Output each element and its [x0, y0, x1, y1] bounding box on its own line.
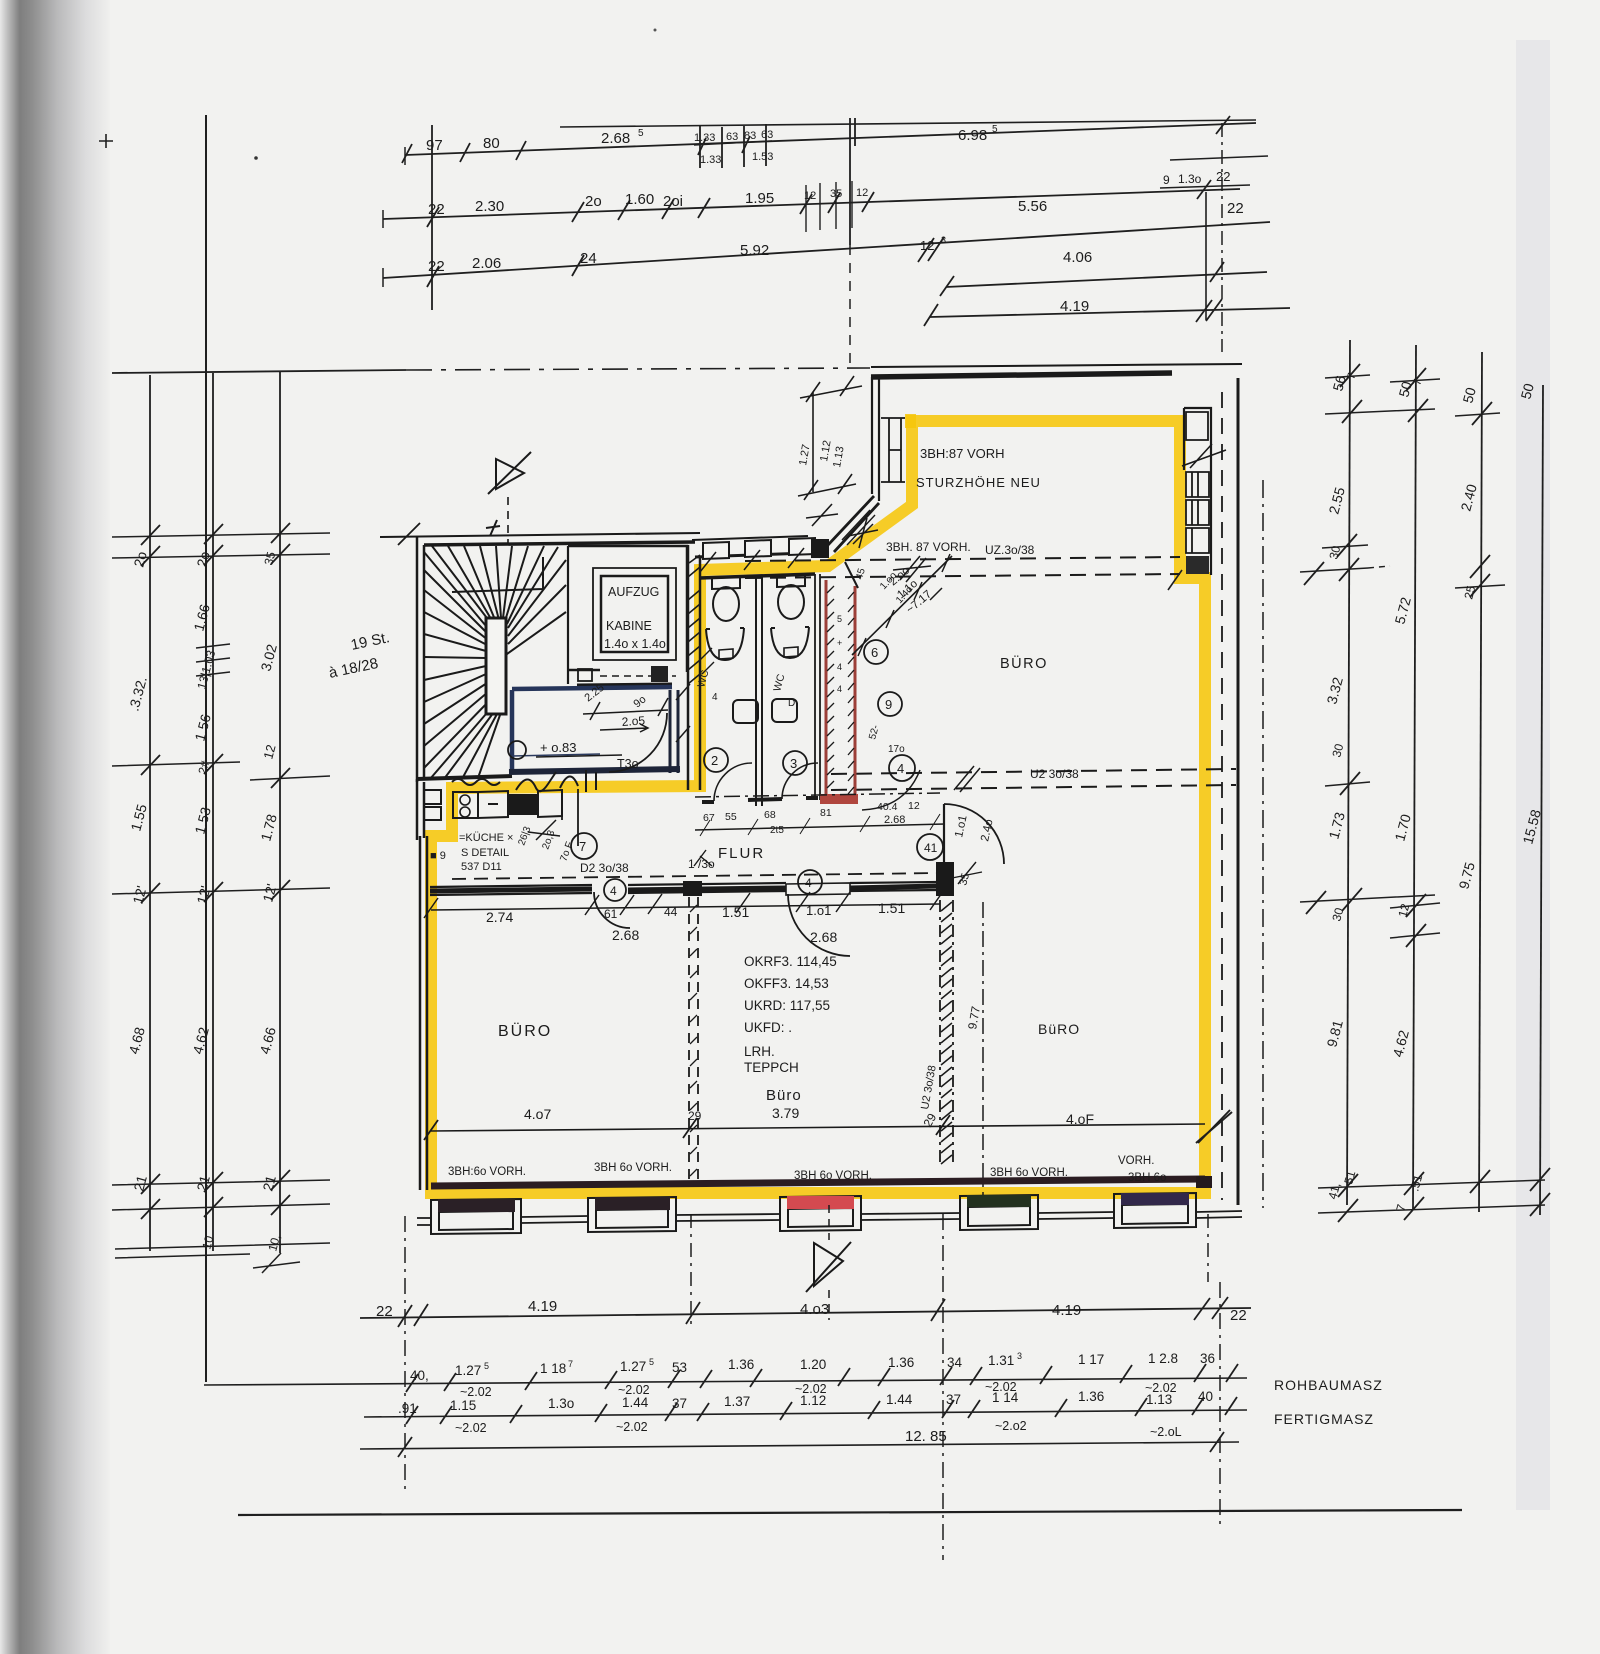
svg-text:~2.02: ~2.02: [616, 1420, 648, 1434]
svg-text:1 /3o: 1 /3o: [688, 857, 715, 871]
svg-text:17o: 17o: [888, 744, 905, 755]
svg-text:2oi: 2oi: [663, 193, 683, 210]
svg-text:2.68: 2.68: [601, 130, 630, 147]
svg-text:5: 5: [638, 128, 644, 139]
svg-text:12: 12: [908, 800, 920, 812]
svg-text:55: 55: [725, 811, 737, 823]
svg-text:4.19: 4.19: [1060, 298, 1089, 315]
svg-text:22: 22: [1227, 200, 1244, 217]
svg-text:12. 85: 12. 85: [905, 1428, 947, 1445]
svg-text:1.20: 1.20: [800, 1357, 826, 1372]
svg-text:24: 24: [580, 250, 597, 267]
svg-text:1.3o: 1.3o: [548, 1396, 574, 1411]
svg-text:61: 61: [604, 907, 618, 921]
svg-text:2.06: 2.06: [472, 255, 501, 272]
svg-text:22: 22: [1216, 169, 1230, 184]
svg-text:■ 9: ■ 9: [430, 850, 446, 862]
svg-text:LRH.: LRH.: [744, 1044, 775, 1059]
svg-text:2o: 2o: [585, 193, 602, 210]
svg-text:1.60: 1.60: [625, 191, 654, 208]
svg-text:~2.02: ~2.02: [455, 1421, 487, 1435]
svg-text:22: 22: [376, 1303, 393, 1320]
svg-text:UZ.3o/38: UZ.3o/38: [985, 543, 1035, 557]
svg-text:63: 63: [761, 129, 773, 141]
svg-text:FLUR: FLUR: [718, 845, 765, 862]
svg-text:TEPPCH: TEPPCH: [744, 1060, 799, 1075]
svg-text:1.37: 1.37: [724, 1394, 750, 1409]
svg-text:ROHBAUMASZ: ROHBAUMASZ: [1274, 1377, 1383, 1393]
svg-text:5: 5: [484, 1361, 489, 1371]
svg-text:6.98: 6.98: [958, 127, 987, 144]
svg-text:Büro: Büro: [766, 1087, 802, 1104]
svg-text:U2 3o/38: U2 3o/38: [1030, 767, 1079, 781]
svg-text:2.30: 2.30: [475, 198, 504, 215]
svg-text:2.o5: 2.o5: [621, 713, 646, 729]
svg-text:1.36: 1.36: [888, 1355, 914, 1370]
svg-text:D: D: [788, 698, 795, 709]
svg-text:9: 9: [885, 697, 892, 712]
svg-text:BÜRO: BÜRO: [1000, 654, 1048, 672]
svg-text:3: 3: [1017, 1351, 1022, 1361]
svg-text:D2 3o/38: D2 3o/38: [580, 861, 629, 875]
svg-text:81: 81: [820, 807, 832, 819]
svg-text:4: 4: [805, 876, 812, 890]
svg-text:4.19: 4.19: [528, 1298, 557, 1315]
svg-text:1 14: 1 14: [992, 1390, 1019, 1405]
svg-text:1.15: 1.15: [450, 1398, 476, 1413]
svg-text:3BH 6o VORH.: 3BH 6o VORH.: [794, 1170, 872, 1182]
svg-text:1 17: 1 17: [1078, 1352, 1104, 1367]
svg-text:1 2.8: 1 2.8: [1148, 1351, 1178, 1366]
svg-text:1.36: 1.36: [728, 1357, 754, 1372]
svg-text:1.44: 1.44: [886, 1392, 913, 1407]
svg-text:AUFZUG: AUFZUG: [608, 585, 659, 599]
svg-text:1.27: 1.27: [620, 1359, 646, 1374]
svg-text:4.06: 4.06: [1063, 249, 1092, 266]
svg-text:2.68: 2.68: [612, 927, 639, 943]
svg-text:+: +: [837, 638, 842, 648]
svg-text:BÜRO: BÜRO: [498, 1022, 552, 1040]
svg-text:FERTIGMASZ: FERTIGMASZ: [1274, 1411, 1374, 1427]
svg-text:2.68: 2.68: [810, 929, 837, 945]
svg-text:40,: 40,: [410, 1368, 429, 1383]
svg-text:S DETAIL: S DETAIL: [461, 847, 509, 859]
svg-text:4: 4: [712, 692, 718, 703]
svg-text:1.4o x 1.4o: 1.4o x 1.4o: [604, 637, 666, 651]
svg-text:2.68: 2.68: [884, 814, 905, 826]
svg-text:1.33: 1.33: [700, 154, 721, 166]
svg-text:4: 4: [837, 684, 842, 694]
svg-text:97: 97: [426, 137, 443, 154]
svg-text:=KÜCHE ×: =KÜCHE ×: [459, 832, 513, 844]
svg-text:4: 4: [837, 662, 842, 672]
svg-text:KABINE: KABINE: [606, 619, 652, 633]
svg-text:2t5: 2t5: [770, 825, 784, 836]
svg-text:5.92: 5.92: [740, 242, 769, 259]
svg-text:4.oF: 4.oF: [1066, 1111, 1094, 1127]
svg-text:3.79: 3.79: [772, 1105, 799, 1121]
svg-text:.91: .91: [398, 1401, 417, 1416]
svg-text:1.95: 1.95: [745, 190, 774, 207]
svg-text:BüRO: BüRO: [1038, 1021, 1080, 1037]
svg-text:4: 4: [610, 884, 617, 898]
svg-text:7: 7: [579, 839, 586, 854]
svg-text:1.36: 1.36: [1078, 1389, 1104, 1404]
svg-text:29: 29: [688, 1109, 702, 1123]
svg-text:63: 63: [726, 131, 738, 143]
svg-text:34: 34: [947, 1355, 963, 1370]
svg-text:3BH. 87 VORH.: 3BH. 87 VORH.: [886, 540, 971, 554]
svg-text:1.27: 1.27: [455, 1363, 481, 1378]
svg-text:1.53: 1.53: [752, 151, 773, 163]
svg-text:1.o1: 1.o1: [806, 903, 831, 918]
svg-text:41: 41: [924, 841, 938, 855]
svg-text:4.o3: 4.o3: [800, 1301, 829, 1318]
svg-text:3BH:87 VORH: 3BH:87 VORH: [920, 446, 1005, 461]
svg-text:UKRD: 117,55: UKRD: 117,55: [744, 998, 830, 1013]
svg-text:537 D11: 537 D11: [461, 861, 502, 873]
svg-text:1.13: 1.13: [1146, 1392, 1172, 1407]
svg-text:3BH 6o VORH.: 3BH 6o VORH.: [990, 1167, 1068, 1179]
svg-text:7: 7: [568, 1359, 573, 1369]
svg-text:3BH:6o VORH.: 3BH:6o VORH.: [448, 1166, 526, 1178]
svg-text:22: 22: [428, 258, 445, 275]
svg-text:~2.02: ~2.02: [460, 1385, 492, 1399]
svg-text:5: 5: [837, 614, 842, 624]
svg-text:UKFD: .: UKFD: .: [744, 1020, 792, 1035]
svg-text:3BH 6o VORH.: 3BH 6o VORH.: [594, 1162, 672, 1174]
svg-text:1.51: 1.51: [878, 900, 905, 916]
svg-text:1 18: 1 18: [540, 1361, 566, 1376]
svg-text:1.51: 1.51: [722, 904, 749, 920]
svg-text:1.44: 1.44: [622, 1395, 649, 1410]
svg-text:67: 67: [703, 812, 715, 824]
svg-text:6: 6: [871, 645, 878, 660]
svg-text:1.33: 1.33: [694, 132, 715, 144]
svg-text:1.3o: 1.3o: [1178, 172, 1202, 186]
svg-text:9: 9: [1163, 173, 1170, 187]
svg-text:22: 22: [1230, 1307, 1247, 1324]
svg-text:4.19: 4.19: [1052, 1302, 1081, 1319]
svg-text:STURZHÖHE NEU: STURZHÖHE NEU: [916, 475, 1041, 490]
svg-text:3: 3: [790, 756, 797, 771]
svg-text:5: 5: [992, 124, 998, 135]
svg-text:OKRF3. 114,45: OKRF3. 114,45: [744, 954, 837, 969]
svg-text:~2.o2: ~2.o2: [995, 1419, 1027, 1433]
svg-text:83: 83: [744, 130, 756, 142]
svg-text:37: 37: [946, 1392, 961, 1407]
svg-text:+ o.83: + o.83: [540, 740, 577, 755]
svg-text:4.o7: 4.o7: [524, 1106, 551, 1122]
svg-text:80: 80: [483, 135, 500, 152]
svg-text:4: 4: [897, 761, 904, 776]
svg-text:3BH 6o: 3BH 6o: [1128, 1172, 1166, 1184]
svg-text:5.56: 5.56: [1018, 198, 1047, 215]
svg-text:~2.oL: ~2.oL: [1150, 1425, 1182, 1439]
svg-text:12: 12: [804, 190, 816, 202]
svg-text:40: 40: [1198, 1389, 1213, 1404]
svg-text:22: 22: [428, 201, 445, 218]
svg-text:35: 35: [830, 188, 842, 200]
svg-text:37: 37: [672, 1396, 687, 1411]
svg-text:T3o: T3o: [617, 757, 639, 771]
svg-text:3: 3: [941, 235, 946, 245]
svg-text:12: 12: [920, 238, 934, 253]
svg-text:44: 44: [664, 905, 678, 919]
svg-text:1.31: 1.31: [988, 1353, 1014, 1368]
svg-text:53: 53: [672, 1360, 687, 1375]
svg-text:1.12: 1.12: [800, 1393, 826, 1408]
svg-text:36: 36: [1200, 1351, 1215, 1366]
svg-text:OKFF3. 14,53: OKFF3. 14,53: [744, 976, 829, 991]
svg-text:2: 2: [711, 753, 718, 768]
svg-text:12: 12: [856, 187, 868, 199]
svg-text:VORH.: VORH.: [1118, 1155, 1154, 1167]
svg-text:5: 5: [649, 1357, 654, 1367]
svg-text:68: 68: [764, 809, 776, 821]
svg-text:2.74: 2.74: [486, 909, 513, 925]
